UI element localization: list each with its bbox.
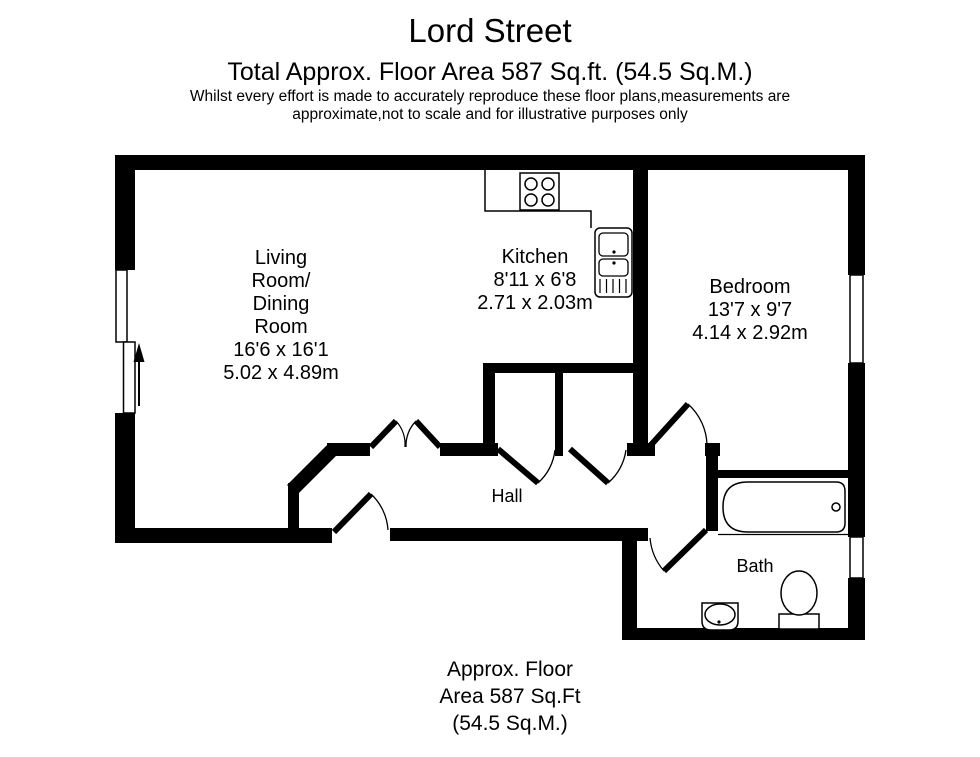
bathtub-icon: [718, 482, 848, 535]
living-room-label: Living Room/ Dining Room 16'6 x 16'1 5.0…: [223, 247, 339, 385]
wall-right-mid: [848, 363, 865, 537]
wall-south-hall: [390, 528, 648, 541]
wall-south-living: [115, 528, 332, 543]
kitchen-size-metric: 2.71 x 2.03m: [477, 292, 593, 315]
total-area-subtitle: Total Approx. Floor Area 587 Sq.ft. (54.…: [227, 58, 752, 86]
wall-kitchen-bedroom: [633, 170, 648, 456]
bedroom-size-imperial: 13'7 x 9'7: [692, 299, 808, 322]
hob-icon: [520, 173, 559, 210]
page-title: Lord Street: [408, 12, 571, 50]
door-bedroom: [650, 404, 707, 446]
door-cupboard-1: [498, 449, 555, 483]
kitchen-size-imperial: 8'11 x 6'8: [477, 269, 593, 292]
basin-icon: [702, 603, 738, 630]
disclaimer-line-1: Whilst every effort is made to accuratel…: [190, 88, 790, 106]
wall-bath-west: [622, 537, 637, 637]
kitchen-label: Kitchen 8'11 x 6'8 2.71 x 2.03m: [477, 246, 593, 315]
door-bath: [650, 530, 706, 571]
wall-hall-north-b: [440, 443, 498, 456]
bedroom-label: Bedroom 13'7 x 9'7 4.14 x 2.92m: [692, 276, 808, 345]
toilet-icon: [779, 571, 819, 629]
bath-label: Bath: [736, 556, 773, 576]
wall-top: [115, 155, 865, 170]
window-living-upper: [116, 270, 127, 342]
kitchen-sink-icon: [595, 228, 632, 297]
wall-bath-bottom: [622, 628, 865, 640]
door-entrance: [334, 494, 388, 532]
bedroom-size-metric: 4.14 x 2.92m: [692, 322, 808, 345]
wall-cupboard-divider: [555, 372, 563, 456]
door-cupboard-2: [570, 449, 626, 483]
window-bedroom: [850, 275, 863, 363]
footer-line-3: (54.5 Sq.M.): [439, 710, 580, 737]
wall-hall-diagonal: [292, 448, 334, 490]
disclaimer-text: Whilst every effort is made to accuratel…: [190, 88, 790, 124]
wall-bedroom-south: [712, 470, 848, 478]
footer-area-text: Approx. Floor Area 587 Sq.Ft (54.5 Sq.M.…: [439, 656, 580, 737]
wall-left-lower: [115, 413, 135, 543]
window-living-lower: [124, 342, 136, 413]
wall-right-upper: [848, 155, 865, 275]
floorplan-page: Lord Street Total Approx. Floor Area 587…: [0, 0, 980, 757]
footer-line-2: Area 587 Sq.Ft: [439, 683, 580, 710]
living-room-size-imperial: 16'6 x 16'1: [223, 339, 339, 362]
door-double-living-hall: [371, 421, 440, 447]
living-room-size-metric: 5.02 x 4.89m: [223, 362, 339, 385]
hall-label: Hall: [491, 486, 522, 506]
wall-left-upper: [115, 155, 135, 270]
disclaimer-line-2: approximate,not to scale and for illustr…: [190, 106, 790, 124]
footer-line-1: Approx. Floor: [439, 656, 580, 683]
wall-kitchen-south: [483, 363, 633, 373]
wall-cupboard-west: [483, 363, 495, 456]
window-bath: [850, 537, 863, 578]
wall-tub-alcove-west: [706, 443, 718, 531]
